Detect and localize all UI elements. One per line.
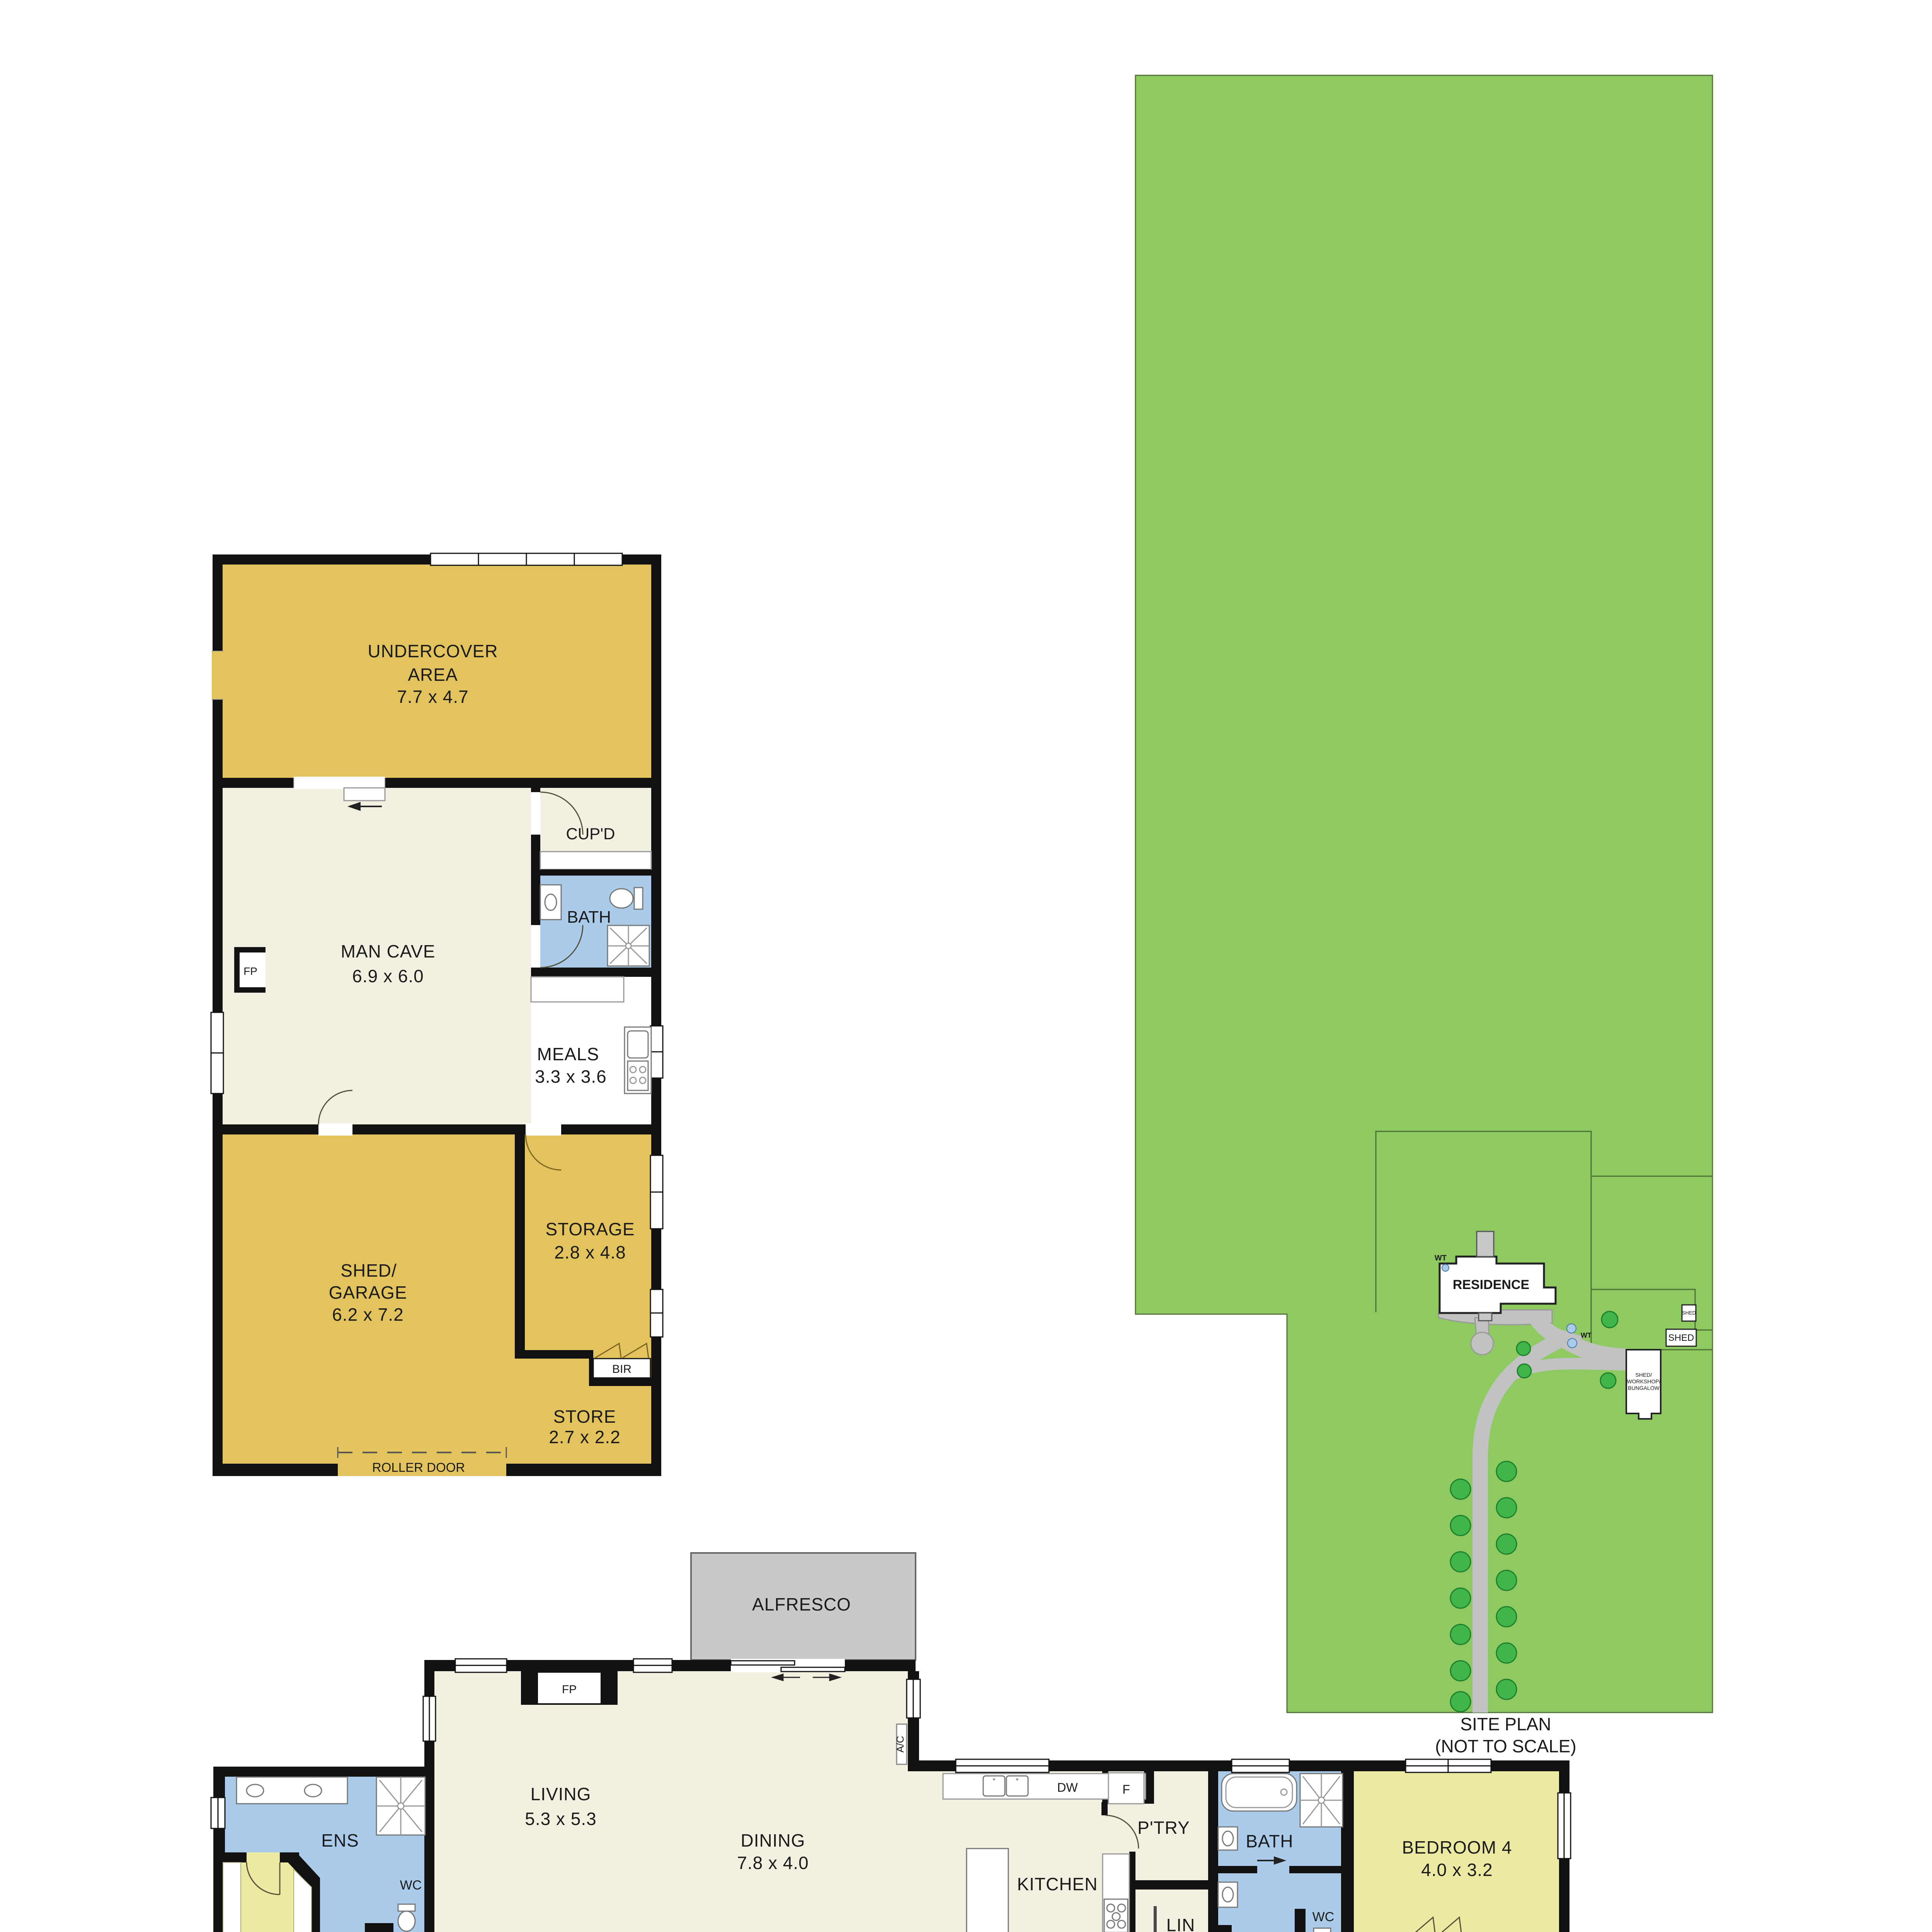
svg-text:6.2 x 7.2: 6.2 x 7.2 bbox=[332, 1304, 403, 1325]
svg-text:MEALS: MEALS bbox=[537, 1044, 599, 1064]
svg-text:SHED: SHED bbox=[1668, 1333, 1694, 1343]
svg-text:6.9 x 6.0: 6.9 x 6.0 bbox=[352, 966, 424, 986]
svg-text:LIN: LIN bbox=[1166, 1915, 1195, 1932]
svg-text:SHED/: SHED/ bbox=[340, 1260, 397, 1281]
svg-text:WC: WC bbox=[1312, 1910, 1335, 1924]
svg-text:3.3 x 3.6: 3.3 x 3.6 bbox=[535, 1066, 606, 1087]
svg-text:STORE: STORE bbox=[553, 1406, 616, 1427]
svg-text:BATH: BATH bbox=[1246, 1831, 1293, 1851]
svg-text:7.7 x 4.7: 7.7 x 4.7 bbox=[397, 687, 468, 707]
svg-text:FP: FP bbox=[243, 965, 257, 977]
svg-text:DINING: DINING bbox=[741, 1830, 805, 1850]
svg-text:4.0 x 3.2: 4.0 x 3.2 bbox=[1421, 1860, 1493, 1880]
svg-text:AREA: AREA bbox=[408, 665, 458, 685]
svg-text:KITCHEN: KITCHEN bbox=[1017, 1874, 1098, 1894]
svg-text:ALFRESCO: ALFRESCO bbox=[752, 1594, 851, 1614]
svg-text:2.7 x 2.2: 2.7 x 2.2 bbox=[549, 1427, 620, 1447]
svg-text:2.8 x 4.8: 2.8 x 4.8 bbox=[554, 1242, 626, 1262]
svg-text:P'TRY: P'TRY bbox=[1137, 1818, 1190, 1838]
svg-text:MAN CAVE: MAN CAVE bbox=[341, 941, 436, 961]
svg-text:BIR: BIR bbox=[612, 1363, 632, 1376]
svg-text:5.3 x 5.3: 5.3 x 5.3 bbox=[525, 1809, 596, 1829]
svg-text:SHED/: SHED/ bbox=[1636, 1372, 1652, 1378]
svg-text:LIVING: LIVING bbox=[531, 1784, 591, 1804]
svg-text:DW: DW bbox=[1057, 1781, 1078, 1794]
svg-text:RESIDENCE: RESIDENCE bbox=[1453, 1277, 1529, 1292]
svg-text:A/C: A/C bbox=[894, 1736, 906, 1752]
svg-text:SHED: SHED bbox=[1682, 1310, 1696, 1316]
svg-text:UNDERCOVER: UNDERCOVER bbox=[368, 641, 498, 661]
svg-text:WT: WT bbox=[1581, 1332, 1592, 1339]
svg-text:WT: WT bbox=[1435, 1254, 1447, 1262]
svg-text:GARAGE: GARAGE bbox=[329, 1282, 407, 1303]
svg-text:STORAGE: STORAGE bbox=[545, 1219, 635, 1239]
svg-text:ROLLER DOOR: ROLLER DOOR bbox=[372, 1460, 465, 1475]
svg-text:CUP'D: CUP'D bbox=[566, 825, 615, 843]
svg-text:ENS: ENS bbox=[321, 1830, 359, 1850]
svg-text:F: F bbox=[1122, 1782, 1130, 1796]
svg-text:WC: WC bbox=[400, 1878, 422, 1893]
svg-text:BUNGALOW: BUNGALOW bbox=[1628, 1385, 1660, 1391]
svg-text:7.8 x 4.0: 7.8 x 4.0 bbox=[737, 1853, 809, 1873]
svg-text:(NOT TO SCALE): (NOT TO SCALE) bbox=[1435, 1736, 1576, 1756]
svg-text:FP: FP bbox=[562, 1683, 577, 1696]
svg-text:SITE PLAN: SITE PLAN bbox=[1460, 1714, 1551, 1734]
svg-text:BATH: BATH bbox=[567, 908, 611, 927]
svg-text:WORKSHOP/: WORKSHOP/ bbox=[1627, 1378, 1660, 1384]
svg-text:BEDROOM 4: BEDROOM 4 bbox=[1402, 1837, 1512, 1857]
